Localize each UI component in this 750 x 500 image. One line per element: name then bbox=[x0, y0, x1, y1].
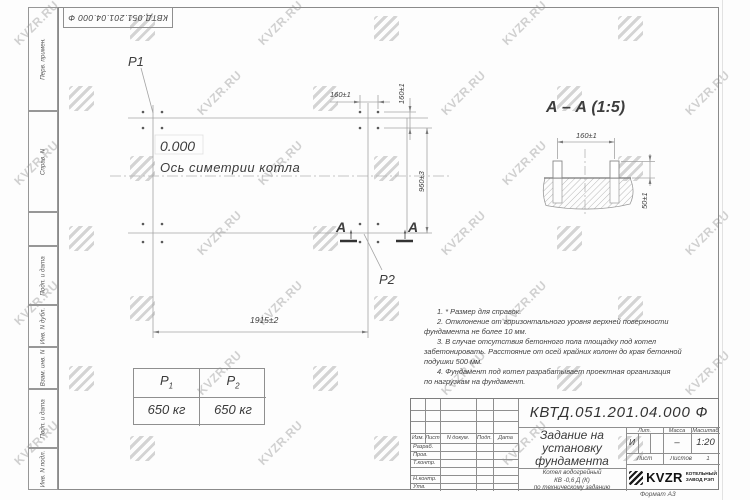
margin-cell-perv-primen: Перв. примен. bbox=[28, 7, 58, 111]
drawing-layer: КВТД.051.201.04.000 Ф Перв. примен. Спра… bbox=[0, 0, 750, 500]
note-line: 3. В случае отсутствия бетонного пола пл… bbox=[424, 337, 720, 347]
corner-doc-number: КВТД.051.201.04.000 Ф bbox=[68, 13, 168, 23]
margin-cell-sprav-n: Справ. N bbox=[28, 111, 58, 212]
note-line: по нагрузкам на фундамент. bbox=[424, 377, 720, 387]
drawing-sheet: KVZR.RUKVZR.RUKVZR.RUKVZR.RUKVZR.RUKVZR.… bbox=[0, 0, 750, 500]
tb-col-ndokum: N докум. bbox=[440, 435, 476, 441]
load-table: P1 P2 650 кг 650 кг bbox=[133, 368, 265, 425]
corner-doc-number-stamp: КВТД.051.201.04.000 Ф bbox=[63, 7, 173, 28]
margin-cell-podp-data-2: Подп. и дата bbox=[28, 389, 58, 448]
tb-row-nkontr: Н.контр. bbox=[413, 476, 440, 482]
technical-notes: 1. * Размер для справок. 2. Отклонение о… bbox=[424, 307, 720, 387]
margin-cell-podp-data-1: Подп. и дата bbox=[28, 246, 58, 305]
margin-cell-empty bbox=[28, 212, 58, 246]
format-label: Формат А3 bbox=[640, 491, 676, 498]
note-line: 2. Отклонение от горизонтального уровня … bbox=[424, 317, 720, 327]
margin-cell-inv-dubl: Инв. N дубл. bbox=[28, 305, 58, 347]
tb-col-podp: Подп. bbox=[476, 435, 493, 441]
tb-scale-value: 1:20 bbox=[691, 437, 720, 448]
tb-row-tkontr: Т.контр. bbox=[413, 460, 440, 466]
margin-cell-vzam-inv: Взам. инв. N bbox=[28, 347, 58, 389]
note-line: 4. Фундамент под котел разрабатывает про… bbox=[424, 367, 720, 377]
note-line: подушки 500 мм. bbox=[424, 357, 720, 367]
tb-col-data: Дата bbox=[493, 435, 518, 441]
tb-title: Задание на установку фундамента bbox=[518, 429, 626, 468]
tb-subtitle: Котел водогрейный КВ -0,6 Д (К) по техни… bbox=[518, 469, 626, 492]
tb-sheets-label: Листов bbox=[663, 456, 699, 462]
load-table-value-p2: 650 кг bbox=[200, 402, 266, 417]
note-line: забетонировать. Расстояние от осей крайн… bbox=[424, 347, 720, 357]
tb-col-list: Лист bbox=[425, 435, 440, 441]
load-table-header-p1: P1 bbox=[134, 373, 199, 391]
tb-doc-number: КВТД.051.201.04.000 Ф bbox=[518, 404, 720, 421]
tb-sheets-value: 1 bbox=[699, 456, 717, 462]
tb-row-prov: Пров. bbox=[413, 452, 440, 458]
note-line: фундамента не более 10 мм. bbox=[424, 327, 720, 337]
paper-edge bbox=[722, 0, 723, 500]
tb-col-izm: Изм. bbox=[411, 435, 425, 441]
tb-sheet-label: Лист bbox=[626, 456, 663, 462]
tb-lit-value: И bbox=[626, 437, 638, 447]
kvzr-logo-icon bbox=[629, 471, 643, 485]
load-table-value-p1: 650 кг bbox=[134, 402, 199, 417]
tb-row-utv: Утв. bbox=[413, 484, 440, 490]
load-table-header-p2: P2 bbox=[200, 373, 266, 391]
margin-cell-inv-podl: Инв. N подл. bbox=[28, 448, 58, 490]
note-line: 1. * Размер для справок. bbox=[424, 307, 720, 317]
tb-lit-header: Лит. bbox=[626, 428, 663, 434]
company-name: КОТЕЛЬНЫЙ ЗАВОД РЭП bbox=[686, 472, 717, 483]
title-block: Изм. Лист N докум. Подп. Дата Разраб. Пр… bbox=[410, 398, 719, 490]
tb-scale-header: Масштаб bbox=[691, 428, 720, 434]
tb-mass-header: Масса bbox=[663, 428, 691, 434]
kvzr-logo-text: KVZR bbox=[646, 470, 683, 485]
company-cell: KVZR КОТЕЛЬНЫЙ ЗАВОД РЭП bbox=[626, 464, 720, 491]
tb-mass-value: – bbox=[663, 437, 691, 448]
tb-row-razrab: Разраб. bbox=[413, 444, 440, 450]
